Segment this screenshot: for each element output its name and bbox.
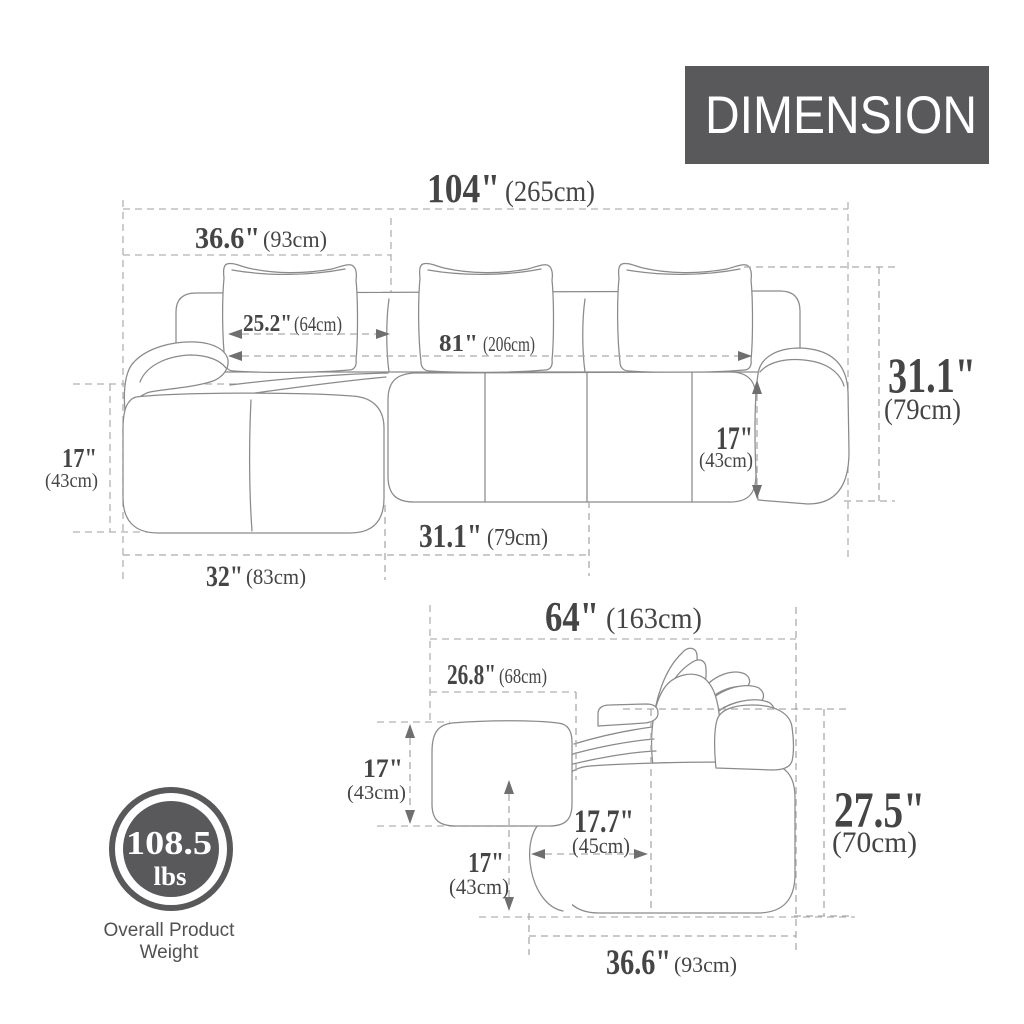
svg-text:17": 17"	[62, 443, 97, 473]
svg-text:(43cm): (43cm)	[45, 470, 98, 492]
svg-text:(206cm): (206cm)	[483, 332, 535, 356]
svg-text:(43cm): (43cm)	[699, 448, 753, 472]
svg-text:Weight: Weight	[140, 942, 200, 963]
svg-text:(43cm): (43cm)	[347, 782, 406, 804]
svg-text:108.5: 108.5	[126, 825, 212, 862]
svg-text:(45cm): (45cm)	[572, 833, 630, 858]
svg-text:(163cm): (163cm)	[606, 602, 702, 635]
svg-text:32": 32"	[206, 560, 243, 593]
svg-text:Overall Product: Overall Product	[104, 920, 236, 941]
svg-text:36.6": 36.6"	[195, 220, 260, 255]
svg-text:(64cm): (64cm)	[294, 312, 342, 336]
svg-text:104": 104"	[427, 165, 500, 211]
svg-text:25.2": 25.2"	[243, 311, 292, 337]
svg-text:(43cm): (43cm)	[449, 874, 509, 899]
svg-text:lbs: lbs	[154, 862, 187, 891]
svg-text:(83cm): (83cm)	[246, 564, 306, 589]
svg-text:31.1": 31.1"	[419, 518, 482, 555]
svg-text:(93cm): (93cm)	[263, 227, 327, 252]
svg-text:81": 81"	[439, 331, 478, 357]
svg-text:(93cm): (93cm)	[674, 952, 737, 977]
svg-text:(79cm): (79cm)	[884, 393, 961, 426]
svg-text:26.8": 26.8"	[447, 660, 496, 691]
svg-text:(70cm): (70cm)	[832, 826, 917, 859]
svg-text:DIMENSION: DIMENSION	[705, 86, 977, 145]
svg-text:(68cm): (68cm)	[499, 664, 547, 688]
svg-text:(265cm): (265cm)	[505, 175, 595, 208]
svg-text:36.6": 36.6"	[606, 942, 671, 982]
svg-text:64": 64"	[545, 595, 599, 641]
svg-text:17": 17"	[363, 754, 403, 783]
svg-text:(79cm): (79cm)	[487, 525, 548, 551]
